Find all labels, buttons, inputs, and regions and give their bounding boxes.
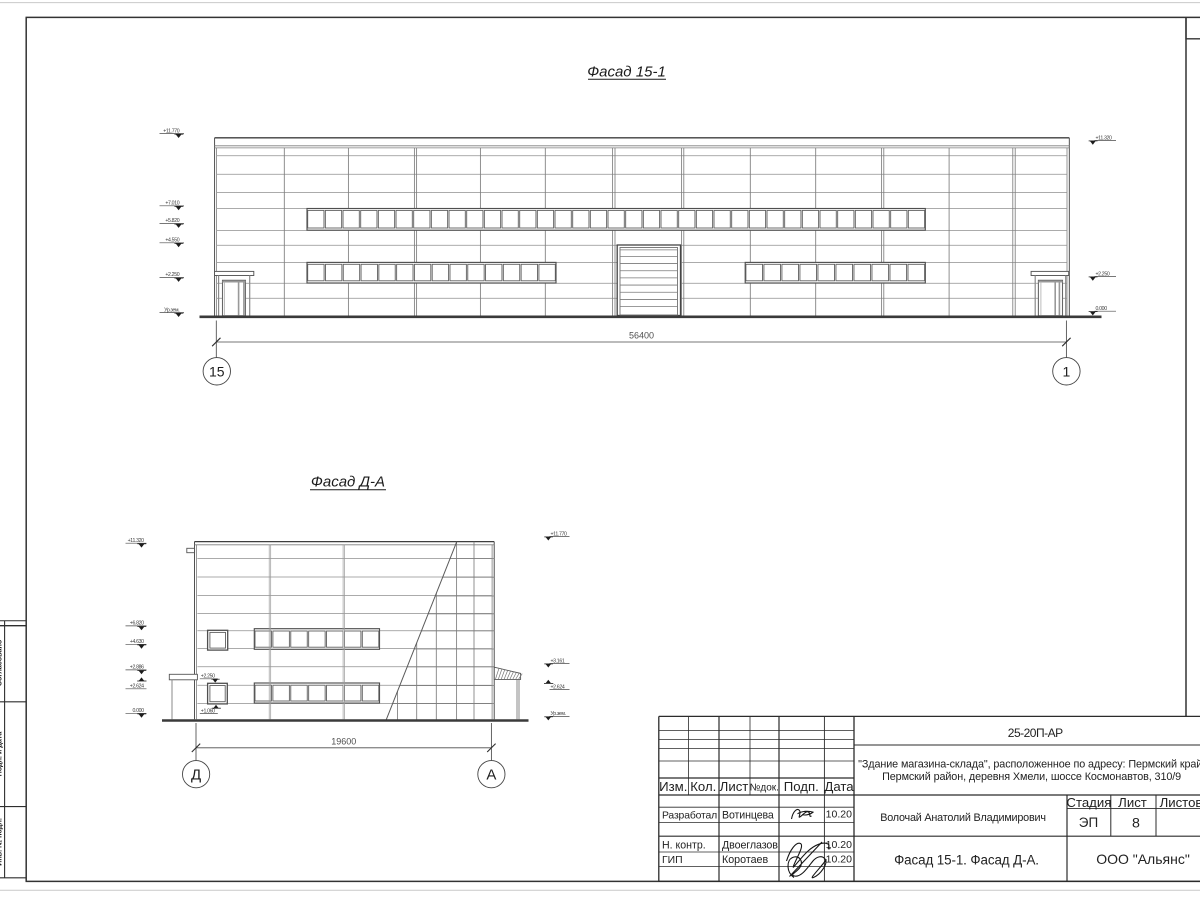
- svg-text:10.20: 10.20: [826, 809, 852, 821]
- svg-text:Лист: Лист: [1118, 795, 1147, 810]
- svg-text:Подп.: Подп.: [784, 779, 819, 794]
- svg-text:Лист: Лист: [720, 779, 749, 794]
- svg-text:Дата: Дата: [824, 779, 854, 794]
- svg-text:Изм.: Изм.: [659, 779, 687, 794]
- svg-text:Согласовано: Согласовано: [0, 639, 4, 686]
- svg-text:Коротаев: Коротаев: [722, 854, 768, 866]
- svg-text:Д: Д: [191, 767, 201, 784]
- svg-text:56400: 56400: [629, 331, 654, 341]
- svg-text:Кол.: Кол.: [690, 779, 716, 794]
- svg-text:Фасад 15-1: Фасад 15-1: [587, 64, 666, 81]
- svg-text:19600: 19600: [331, 736, 356, 746]
- svg-text:Н. контр.: Н. контр.: [662, 840, 706, 852]
- svg-text:Разработал: Разработал: [662, 809, 717, 821]
- svg-text:Фасад Д-А: Фасад Д-А: [311, 473, 385, 490]
- svg-text:Фасад 15-1. Фасад Д-А.: Фасад 15-1. Фасад Д-А.: [894, 853, 1039, 868]
- svg-text:ООО "Альянс": ООО "Альянс": [1096, 851, 1190, 867]
- svg-text:10.20: 10.20: [826, 853, 852, 865]
- svg-text:1: 1: [1063, 363, 1071, 379]
- svg-text:Стадия: Стадия: [1066, 795, 1111, 810]
- svg-text:А: А: [486, 767, 496, 784]
- svg-text:8: 8: [1132, 816, 1140, 832]
- svg-text:"Здание магазина-склада", расп: "Здание магазина-склада", расположенное …: [858, 758, 1200, 770]
- svg-text:Подп. и дата: Подп. и дата: [0, 731, 4, 777]
- svg-text:№док.: №док.: [750, 782, 779, 793]
- svg-text:ГИП: ГИП: [662, 855, 683, 866]
- svg-text:Листов: Листов: [1160, 795, 1200, 810]
- svg-text:Волочай Анатолий Владимирович: Волочай Анатолий Владимирович: [880, 812, 1046, 824]
- svg-text:ЭП: ЭП: [1079, 815, 1098, 830]
- svg-text:Инв. № подл.: Инв. № подл.: [0, 818, 4, 866]
- svg-text:25-20П-АР: 25-20П-АР: [1008, 726, 1063, 740]
- svg-text:Двоеглазов: Двоеглазов: [722, 840, 778, 852]
- svg-text:Пермский район, деревня Хмели,: Пермский район, деревня Хмели, шоссе Кос…: [882, 771, 1181, 783]
- svg-text:Вотинцева: Вотинцева: [722, 809, 774, 821]
- svg-text:15: 15: [209, 363, 225, 379]
